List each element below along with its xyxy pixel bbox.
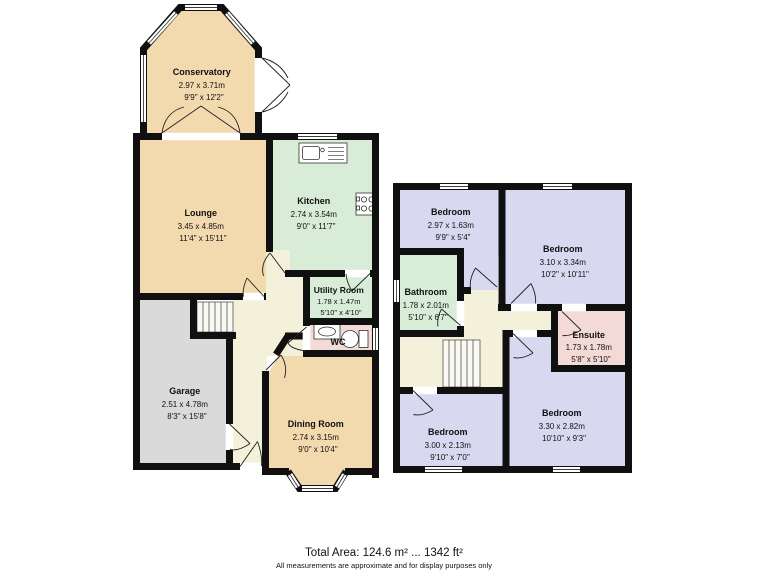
room-label-utility: Utility Room 1.78 x 1.47m 5'10" x 4'10" [314,280,369,317]
room-label-garage: Garage 2.51 x 4.78m 8'3" x 15'8" [162,381,213,421]
room-label-bathroom: Bathroom 1.78 x 2.01m 5'10" x 6'7" [403,282,454,322]
stairs-first [443,340,480,387]
stairs-first-box [443,340,480,387]
footer: Total Area: 124.6 m² ... 1342 ft² All me… [276,547,492,570]
disclaimer-text: All measurements are approximate and for… [276,561,492,570]
floorplan-page: Conservatory 2.97 x 3.71m 9'9" x 12'2" L… [0,0,768,576]
room-label-bedroom4: Bedroom 3.30 x 2.82m 10'10" x 9'3" [539,403,590,443]
room-label-wc: WC [331,337,346,347]
room-label-kitchen: Kitchen 2.74 x 3.54m 9'0" x 11'7" [291,191,342,231]
room-label-bedroom3: Bedroom 3.00 x 2.13m 9'10" x 7'0" [425,422,476,462]
kitchen-sink [299,143,347,163]
hall-fill-upper [233,296,307,356]
floorplan-canvas: Conservatory 2.97 x 3.71m 9'9" x 12'2" L… [0,0,768,576]
stairs-ground [197,302,233,332]
room-label-ensuite: Ensuite 1.73 x 1.78m 5'8" x 5'10" [566,325,617,364]
ground-floor-plan: Conservatory 2.97 x 3.71m 9'9" x 12'2" L… [133,8,379,489]
room-label-lounge: Lounge 3.45 x 4.85m 11'4" x 15'11" [178,203,229,243]
first-floor-plan: Bedroom 2.97 x 1.63m 9'9" x 5'4" Bedroom… [396,183,629,473]
room-label-bedroom2: Bedroom 3.10 x 3.34m 10'2" x 10'11" [540,239,591,279]
total-area-text: Total Area: 124.6 m² ... 1342 ft² [305,547,463,559]
